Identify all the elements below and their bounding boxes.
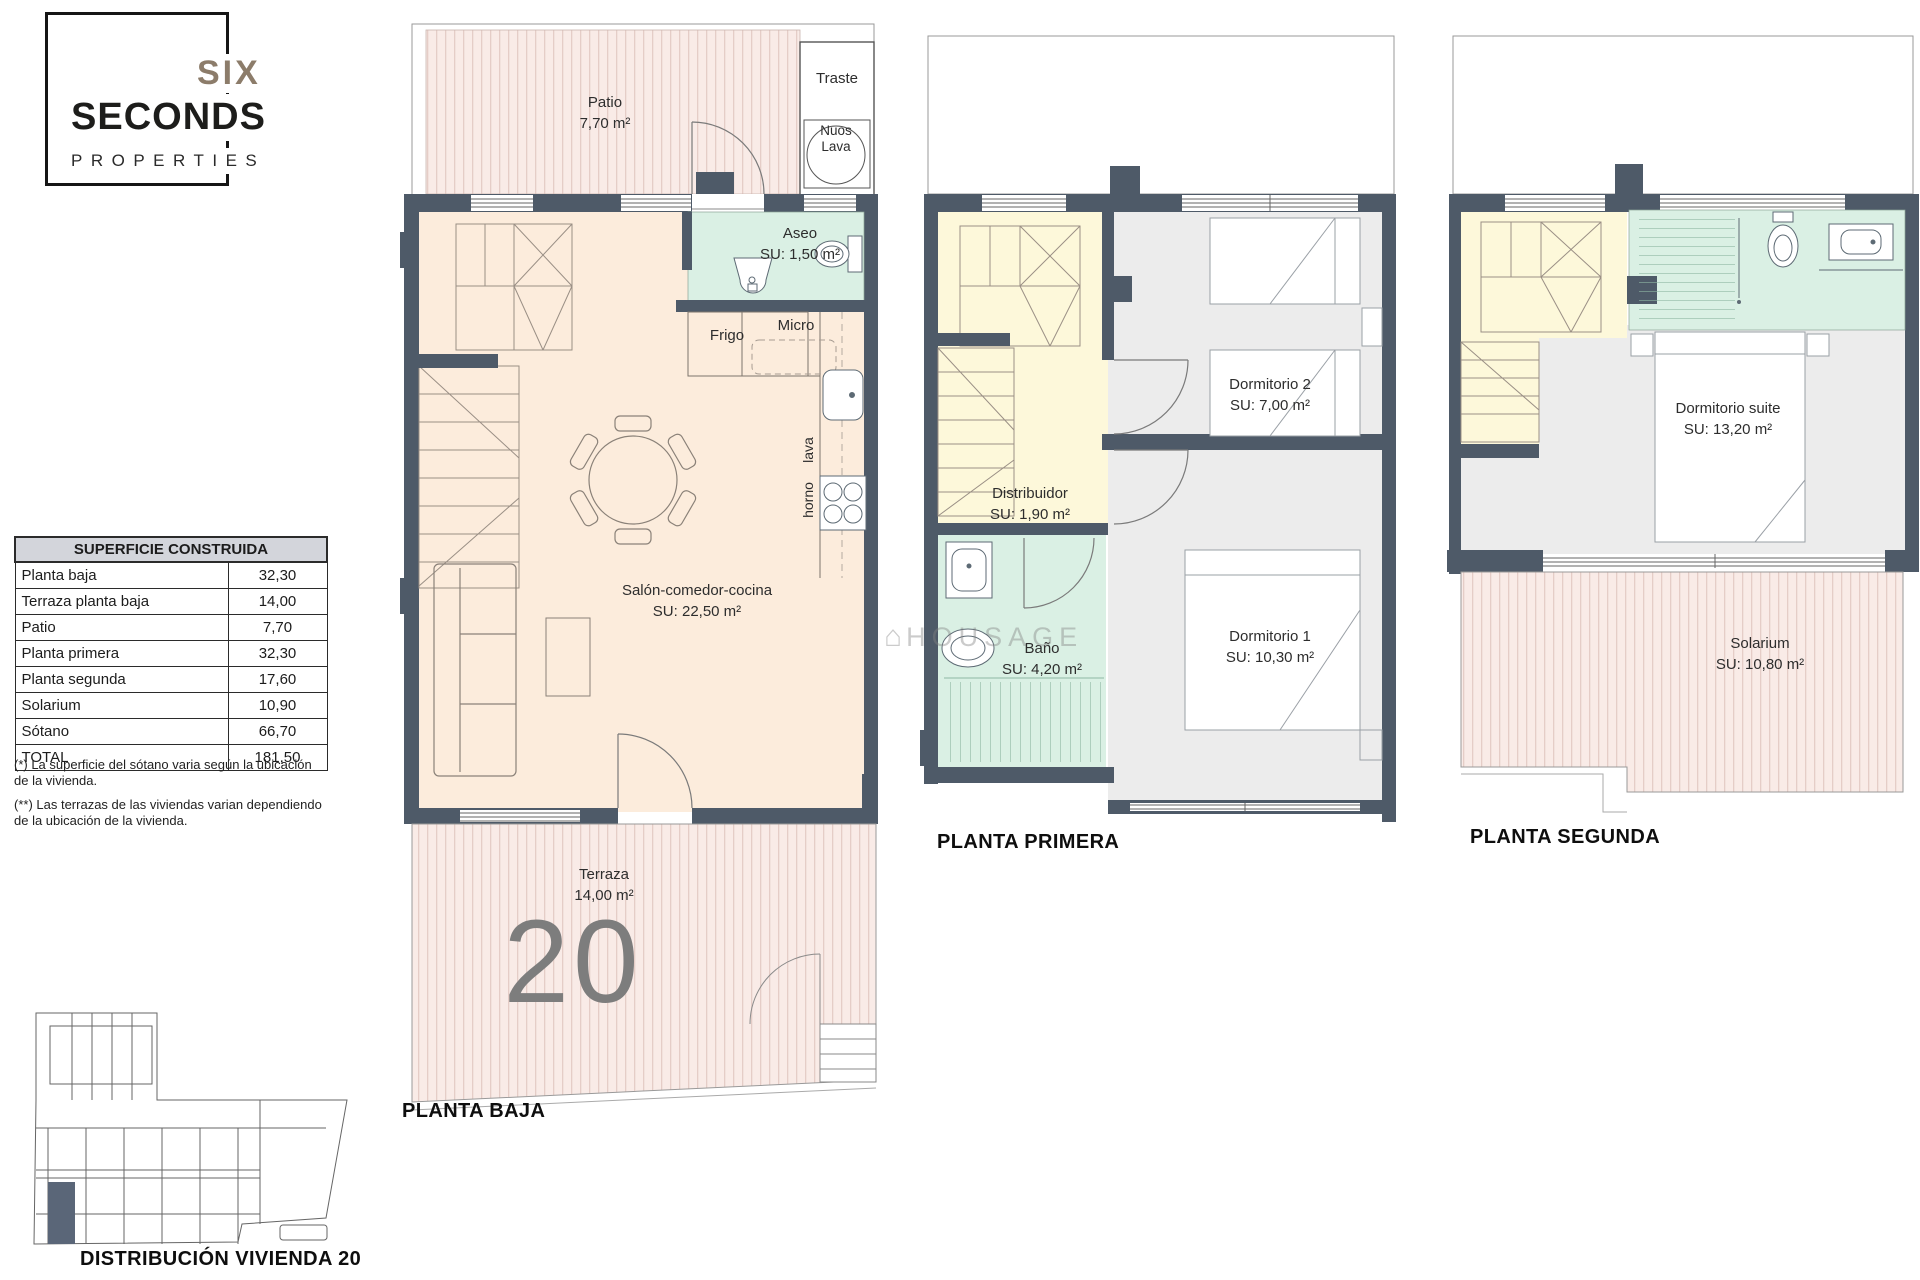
room-label-solarium: SolariumSU: 10,80 m² — [1716, 633, 1804, 675]
room-label-traste: Traste — [816, 68, 858, 89]
housage-house-icon: ⌂ — [884, 620, 902, 654]
table-row: Terraza planta baja14,00 — [15, 589, 327, 615]
footnote-sotano: (*) La superficie del sótano varia según… — [14, 757, 324, 789]
bath-sink-icon — [946, 542, 992, 598]
window-icon — [1543, 554, 1885, 568]
area-value: 10,90 — [228, 693, 327, 719]
window-icon — [460, 810, 580, 822]
site-plan-title: DISTRIBUCIÓN VIVIENDA 20 — [80, 1248, 361, 1271]
room-label-dormitorio-suite: Dormitorio suiteSU: 13,20 m² — [1675, 398, 1780, 440]
area-label: Planta segunda — [15, 667, 228, 693]
area-value: 32,30 — [228, 562, 327, 589]
window-icon — [1505, 195, 1845, 211]
label-lava: lava — [800, 437, 816, 463]
table-row: Sótano66,70 — [15, 719, 327, 745]
site-plan-drawing — [20, 1000, 370, 1260]
footnote-terrazas: (**) Las terrazas de las viviendas varia… — [14, 797, 324, 829]
logo-text-properties: PROPERTIES — [67, 148, 269, 174]
area-value: 66,70 — [228, 719, 327, 745]
table-row: Planta primera32,30 — [15, 641, 327, 667]
label-micro: Micro — [778, 315, 815, 336]
area-label: Planta baja — [15, 562, 228, 589]
surface-area-table: SUPERFICIE CONSTRUIDA Planta baja32,30 T… — [14, 536, 328, 771]
traste-room — [800, 42, 874, 195]
label-frigo: Frigo — [710, 325, 744, 346]
toilet-icon — [1768, 212, 1798, 267]
table-row: Patio7,70 — [15, 615, 327, 641]
shower-icon — [1639, 218, 1741, 322]
label-nuos-lava: NuosLava — [820, 123, 852, 155]
table-title: SUPERFICIE CONSTRUIDA — [15, 537, 327, 562]
room-label-terraza: Terraza14,00 m² — [574, 864, 633, 906]
terrace-steps-icon — [820, 1024, 876, 1082]
room-label-dormitorio-2: Dormitorio 2SU: 7,00 m² — [1229, 374, 1311, 416]
area-label: Planta primera — [15, 641, 228, 667]
highlighted-unit-20 — [48, 1182, 75, 1244]
plan-title-planta-segunda: PLANTA SEGUNDA — [1470, 826, 1660, 849]
logo-text-seconds: SECONDS — [65, 94, 272, 141]
company-logo: SIX SECONDS PROPERTIES — [45, 12, 270, 197]
housage-watermark: ⌂ HOUSAGE — [884, 620, 1083, 654]
room-label-salon: Salón-comedor-cocinaSU: 22,50 m² — [622, 580, 772, 622]
label-horno: horno — [800, 482, 816, 518]
floor-plan-planta-segunda — [1445, 30, 1920, 860]
table-row: Planta segunda17,60 — [15, 667, 327, 693]
area-label: Solarium — [15, 693, 228, 719]
area-value: 17,60 — [228, 667, 327, 693]
logo-text-six: SIX — [185, 54, 264, 93]
area-label: Sótano — [15, 719, 228, 745]
stove-icon — [820, 476, 866, 530]
room-label-aseo: AseoSU: 1,50 m² — [760, 223, 840, 265]
plan-title-planta-baja: PLANTA BAJA — [402, 1100, 545, 1123]
kitchen-sink-icon — [823, 370, 863, 420]
area-label: Patio — [15, 615, 228, 641]
table-row: Planta baja32,30 — [15, 562, 327, 589]
floor-plan-planta-baja — [400, 18, 890, 1118]
housage-watermark-text: HOUSAGE — [906, 622, 1083, 653]
room-label-patio: Patio7,70 m² — [580, 92, 631, 134]
area-label: Terraza planta baja — [15, 589, 228, 615]
floor-plan-planta-primera — [920, 30, 1400, 860]
room-label-dormitorio-1: Dormitorio 1SU: 10,30 m² — [1226, 626, 1314, 668]
room-label-distribuidor: DistribuidorSU: 1,90 m² — [990, 483, 1070, 525]
table-row: Solarium10,90 — [15, 693, 327, 719]
window-icon — [1130, 803, 1360, 811]
shower-icon — [944, 678, 1104, 762]
plan-title-planta-primera: PLANTA PRIMERA — [937, 831, 1119, 854]
area-value: 32,30 — [228, 641, 327, 667]
area-value: 7,70 — [228, 615, 327, 641]
area-value: 14,00 — [228, 589, 327, 615]
unit-number: 20 — [503, 903, 642, 1021]
